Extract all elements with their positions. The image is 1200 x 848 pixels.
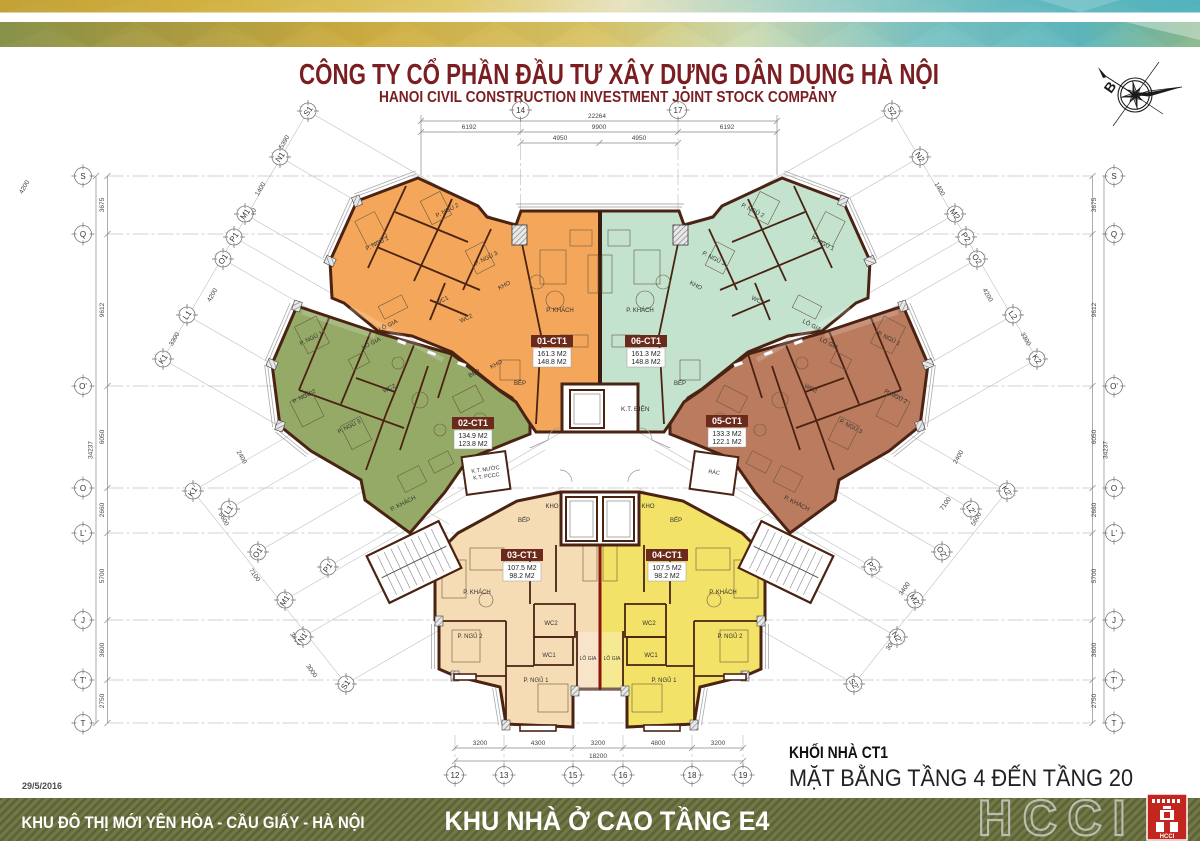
svg-text:K.T. ĐIỆN: K.T. ĐIỆN (621, 404, 650, 413)
svg-text:3200: 3200 (473, 740, 488, 747)
svg-text:P. KHÁCH: P. KHÁCH (463, 589, 491, 596)
svg-text:P. KHÁCH: P. KHÁCH (546, 307, 574, 314)
svg-text:13: 13 (500, 771, 509, 780)
svg-text:16: 16 (619, 771, 628, 780)
svg-text:LÔ GIA: LÔ GIA (604, 655, 621, 662)
svg-text:LÔ GIA: LÔ GIA (580, 655, 597, 662)
svg-text:BẾP: BẾP (518, 517, 530, 524)
svg-text:KHỐI NHÀ CT1: KHỐI NHÀ CT1 (789, 742, 888, 762)
svg-text:9612: 9612 (99, 302, 106, 317)
svg-text:06-CT1: 06-CT1 (631, 336, 661, 346)
svg-text:P. NGỦ 1: P. NGỦ 1 (524, 677, 550, 684)
svg-text:3200: 3200 (591, 740, 606, 747)
svg-text:T': T' (1111, 676, 1118, 685)
svg-text:123.8 M2: 123.8 M2 (458, 441, 487, 448)
svg-text:22264: 22264 (588, 113, 606, 120)
svg-text:HCCI: HCCI (1160, 834, 1175, 840)
svg-text:18200: 18200 (589, 753, 607, 760)
svg-text:J: J (1112, 616, 1116, 625)
svg-text:18: 18 (688, 771, 697, 780)
svg-text:KHO: KHO (641, 504, 654, 510)
svg-text:MẶT BẰNG TẦNG 4 ĐẾN TẦNG 20: MẶT BẰNG TẦNG 4 ĐẾN TẦNG 20 (789, 764, 1133, 792)
svg-text:4950: 4950 (632, 135, 647, 142)
svg-text:9900: 9900 (592, 124, 607, 131)
svg-text:WC1: WC1 (542, 653, 556, 659)
svg-text:HCCI: HCCI (978, 790, 1136, 846)
svg-text:2750: 2750 (1091, 693, 1098, 708)
svg-text:BẾP: BẾP (670, 517, 682, 524)
svg-text:19: 19 (739, 771, 748, 780)
svg-text:04-CT1: 04-CT1 (652, 550, 682, 560)
svg-text:9612: 9612 (1091, 302, 1098, 317)
svg-text:T: T (81, 719, 86, 728)
svg-text:P. NGỦ 2: P. NGỦ 2 (458, 633, 484, 640)
svg-text:4950: 4950 (553, 135, 568, 142)
svg-text:98.2 M2: 98.2 M2 (654, 573, 679, 580)
svg-text:14: 14 (516, 106, 525, 115)
svg-text:S: S (1111, 172, 1116, 181)
svg-text:98.2 M2: 98.2 M2 (509, 573, 534, 580)
svg-text:P. KHÁCH: P. KHÁCH (709, 589, 737, 596)
svg-text:2660: 2660 (1091, 502, 1098, 517)
svg-text:L': L' (80, 529, 86, 538)
svg-text:3675: 3675 (99, 197, 106, 212)
svg-text:17: 17 (674, 106, 683, 115)
svg-text:WC1: WC1 (644, 653, 658, 659)
svg-text:KHU ĐÔ THỊ MỚI YÊN HÒA - CẦU G: KHU ĐÔ THỊ MỚI YÊN HÒA - CẦU GIẤY - HÀ N… (22, 813, 365, 832)
svg-text:5700: 5700 (1091, 568, 1098, 583)
svg-text:O: O (80, 484, 86, 493)
svg-text:5700: 5700 (99, 568, 106, 583)
svg-text:CÔNG TY CỔ PHẦN ĐẦU TƯ XÂY DỰN: CÔNG TY CỔ PHẦN ĐẦU TƯ XÂY DỰNG DÂN DỤNG… (299, 57, 939, 91)
svg-text:O': O' (79, 382, 87, 391)
svg-text:122.1 M2: 122.1 M2 (712, 439, 741, 446)
svg-text:161.3 M2: 161.3 M2 (631, 351, 660, 358)
svg-text:29/5/2016: 29/5/2016 (22, 781, 62, 791)
svg-text:L': L' (1111, 529, 1117, 538)
svg-text:O: O (1111, 484, 1117, 493)
svg-text:Q: Q (1111, 230, 1117, 239)
svg-text:T: T (1112, 719, 1117, 728)
svg-text:2750: 2750 (99, 693, 106, 708)
svg-text:KHO: KHO (545, 504, 558, 510)
svg-text:T': T' (80, 676, 87, 685)
svg-text:161.3 M2: 161.3 M2 (537, 351, 566, 358)
svg-text:P. KHÁCH: P. KHÁCH (626, 307, 654, 314)
svg-text:6050: 6050 (99, 429, 106, 444)
svg-text:P. NGỦ 2: P. NGỦ 2 (718, 633, 744, 640)
svg-text:107.5 M2: 107.5 M2 (652, 565, 681, 572)
svg-text:J: J (81, 616, 85, 625)
svg-text:HANOI CIVIL CONSTRUCTION INVES: HANOI CIVIL CONSTRUCTION INVESTMENT JOIN… (379, 89, 837, 106)
svg-text:4300: 4300 (531, 740, 546, 747)
svg-text:148.8 M2: 148.8 M2 (537, 359, 566, 366)
svg-text:P. NGỦ 1: P. NGỦ 1 (652, 677, 678, 684)
svg-text:01-CT1: 01-CT1 (537, 336, 567, 346)
svg-text:107.5 M2: 107.5 M2 (507, 565, 536, 572)
svg-text:4800: 4800 (651, 740, 666, 747)
svg-text:02-CT1: 02-CT1 (458, 418, 488, 428)
svg-text:2660: 2660 (99, 502, 106, 517)
svg-text:KHU NHÀ Ở CAO TẦNG E4: KHU NHÀ Ở CAO TẦNG E4 (445, 804, 770, 836)
svg-text:Q: Q (80, 230, 86, 239)
svg-text:3675: 3675 (1091, 197, 1098, 212)
svg-text:3200: 3200 (711, 740, 726, 747)
svg-text:133.3 M2: 133.3 M2 (712, 431, 741, 438)
svg-text:12: 12 (451, 771, 460, 780)
svg-text:BẾP: BẾP (674, 380, 686, 387)
svg-text:6192: 6192 (462, 124, 477, 131)
svg-text:WC2: WC2 (642, 621, 656, 627)
svg-text:6192: 6192 (720, 124, 735, 131)
svg-text:O': O' (1110, 382, 1118, 391)
svg-text:S: S (80, 172, 85, 181)
svg-text:WC2: WC2 (544, 621, 558, 627)
svg-text:03-CT1: 03-CT1 (507, 550, 537, 560)
svg-text:3600: 3600 (1091, 642, 1098, 657)
svg-text:148.8 M2: 148.8 M2 (631, 359, 660, 366)
svg-text:34237: 34237 (88, 441, 95, 459)
svg-text:134.9 M2: 134.9 M2 (458, 433, 487, 440)
svg-text:05-CT1: 05-CT1 (712, 416, 742, 426)
svg-text:6050: 6050 (1091, 429, 1098, 444)
svg-text:34237: 34237 (1103, 441, 1110, 459)
svg-text:3600: 3600 (99, 642, 106, 657)
svg-text:BẾP: BẾP (514, 380, 526, 387)
svg-text:15: 15 (569, 771, 578, 780)
